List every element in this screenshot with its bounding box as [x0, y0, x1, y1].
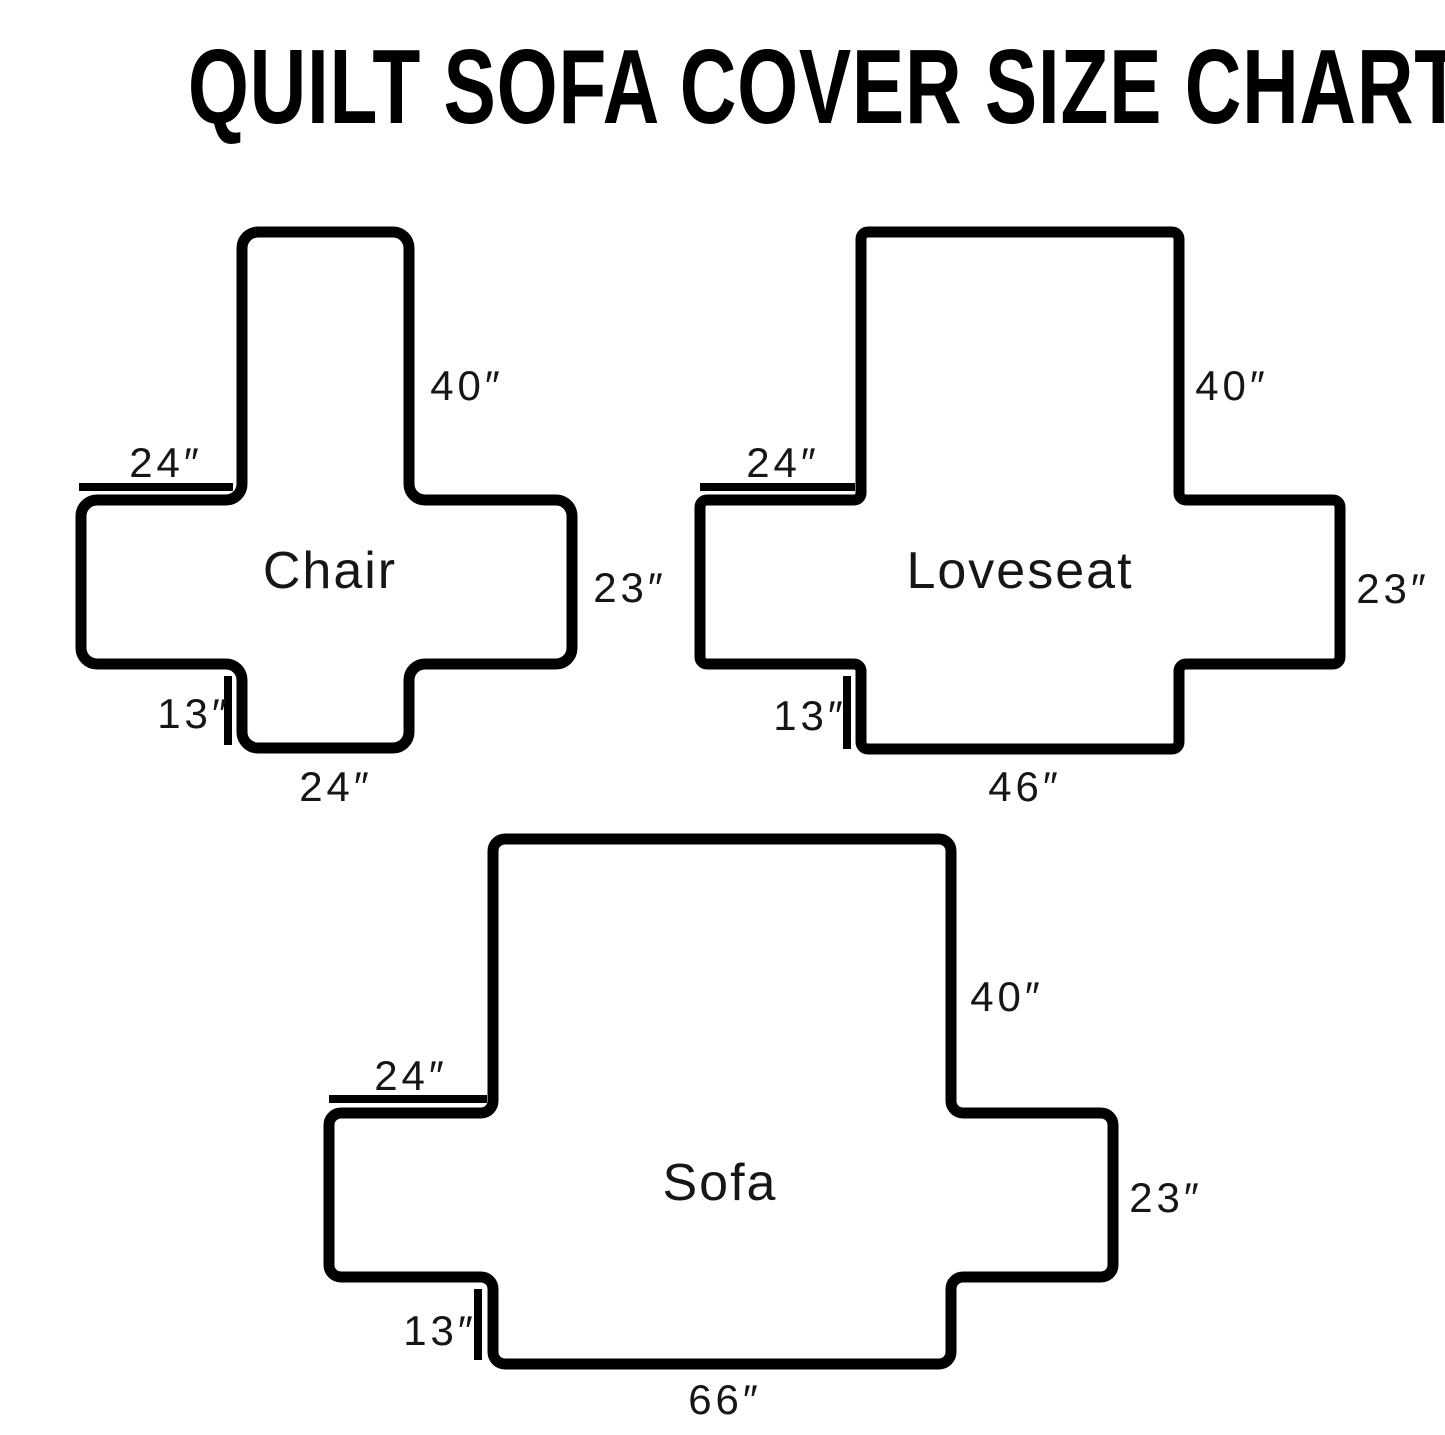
loveseat-back-height-label: 40″: [1195, 362, 1269, 409]
chair-diagram: 40″ 24″ Chair 23″ 13″ 24″: [79, 232, 667, 810]
chair-arm-height-label: 23″: [593, 564, 667, 611]
loveseat-name-label: Loveseat: [906, 542, 1133, 600]
sofa-diagram: 40″ 24″ Sofa 23″ 13″ 66″: [329, 839, 1203, 1423]
sofa-name-label: Sofa: [663, 1154, 778, 1212]
sofa-arm-height-label: 23″: [1129, 1174, 1203, 1221]
chair-back-height-label: 40″: [430, 362, 504, 409]
chair-arm-width-label: 24″: [129, 439, 203, 486]
loveseat-bottom-width-label: 46″: [988, 763, 1062, 810]
chair-flap-height-label: 13″: [157, 690, 231, 737]
chair-bottom-width-label: 24″: [299, 763, 373, 810]
sofa-bottom-width-label: 66″: [688, 1376, 762, 1423]
sofa-arm-width-label: 24″: [374, 1052, 448, 1099]
sofa-flap-height-label: 13″: [403, 1307, 477, 1354]
loveseat-flap-height-label: 13″: [773, 692, 847, 739]
loveseat-arm-width-label: 24″: [746, 439, 820, 486]
chair-name-label: Chair: [263, 542, 397, 600]
size-chart-canvas: 40″ 24″ Chair 23″ 13″ 24″ 40″ 24″ Lovese…: [0, 0, 1445, 1435]
sofa-back-height-label: 40″: [970, 973, 1044, 1020]
loveseat-diagram: 40″ 24″ Loveseat 23″ 13″ 46″: [700, 232, 1430, 810]
loveseat-arm-height-label: 23″: [1356, 565, 1430, 612]
